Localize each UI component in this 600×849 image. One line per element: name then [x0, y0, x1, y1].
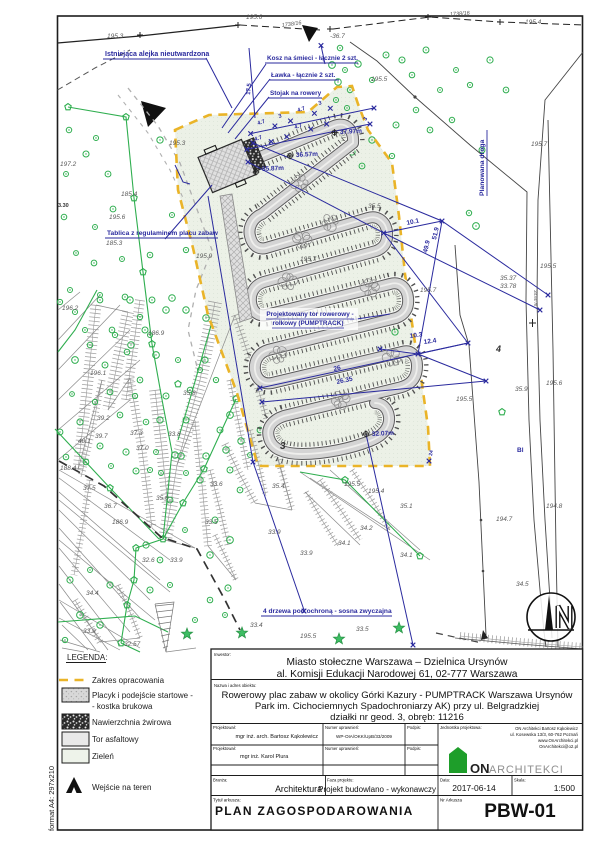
- svg-text:33.4: 33.4: [250, 622, 263, 629]
- svg-text:mgr inż. arch. Bartosz Kąkolew: mgr inż. arch. Bartosz Kąkolewicz: [235, 734, 318, 740]
- svg-text:35.4: 35.4: [272, 483, 285, 490]
- svg-text:33.9: 33.9: [170, 557, 183, 564]
- svg-text:Numer uprawnień:: Numer uprawnień:: [325, 725, 359, 730]
- svg-text:195.4: 195.4: [368, 488, 385, 495]
- svg-text:Projektowany tor rowerowy -: Projektowany tor rowerowy -: [266, 311, 353, 318]
- svg-text:ON Architekci Bartosz Kąkol: ON Architekci Bartosz Kąkolewicz: [515, 726, 578, 731]
- svg-text:Park im. Cichociemnych Spadoch: Park im. Cichociemnych Spadochroniarzy A…: [255, 701, 539, 712]
- svg-text:195.9: 195.9: [196, 253, 213, 260]
- svg-text:Projektował:: Projektował:: [213, 725, 236, 730]
- svg-text:ul. Kosewska 13/3, 60-762 Pozn: ul. Kosewska 13/3, 60-762 Poznań: [510, 732, 578, 737]
- svg-text:196.1: 196.1: [90, 370, 107, 377]
- svg-text:186.9: 186.9: [148, 330, 165, 337]
- svg-text:33.5: 33.5: [356, 626, 369, 633]
- svg-text:35.8: 35.8: [183, 390, 196, 397]
- svg-text:194.8: 194.8: [546, 503, 563, 510]
- svg-text:34.2: 34.2: [360, 525, 373, 532]
- svg-text:Faza projektu:: Faza projektu:: [327, 778, 354, 783]
- svg-text:Nazwa i adres obiektu:: Nazwa i adres obiektu:: [214, 683, 256, 688]
- svg-text:33.9: 33.9: [300, 550, 313, 557]
- svg-text:Ławka - łącznie 2 szt.: Ławka - łącznie 2 szt.: [271, 72, 336, 79]
- svg-text:37.97m: 37.97m: [340, 128, 363, 136]
- svg-text:195.5: 195.5: [371, 76, 388, 83]
- svg-text:35.87m: 35.87m: [262, 165, 285, 173]
- svg-text:34.4: 34.4: [86, 590, 99, 597]
- svg-text:195.7: 195.7: [420, 287, 437, 294]
- svg-text:195.6: 195.6: [246, 14, 263, 21]
- svg-text:ARCHITEKCI: ARCHITEKCI: [489, 764, 564, 776]
- svg-text:-36.7: -36.7: [330, 33, 345, 40]
- svg-text:37.5: 37.5: [83, 485, 96, 492]
- svg-text:34.1: 34.1: [338, 540, 351, 547]
- svg-text:Podpis:: Podpis:: [407, 746, 421, 751]
- svg-text:39.2: 39.2: [97, 415, 110, 422]
- svg-text:Bl: Bl: [517, 447, 524, 454]
- svg-text:195.3: 195.3: [107, 33, 124, 40]
- svg-text:37.0: 37.0: [136, 445, 149, 452]
- svg-text:195.3: 195.3: [169, 140, 186, 147]
- svg-text:Architektura: Architektura: [275, 784, 322, 794]
- svg-text:33.9: 33.9: [83, 628, 96, 635]
- svg-text:Numer uprawnień:: Numer uprawnień:: [325, 746, 359, 751]
- svg-text:194.7: 194.7: [496, 516, 513, 523]
- svg-text:35.9: 35.9: [515, 386, 528, 393]
- svg-text:3: 3: [280, 441, 286, 452]
- svg-text:Kosz na śmieci - łącznie 2 szt: Kosz na śmieci - łącznie 2 szt.: [267, 55, 358, 62]
- svg-text:195.6: 195.6: [546, 380, 563, 387]
- svg-text:Nr Arkusza: Nr Arkusza: [440, 798, 463, 803]
- svg-text:Miasto stołeczne Warszawa – Dz: Miasto stołeczne Warszawa – Dzielnica Ur…: [287, 657, 509, 668]
- svg-text:195.5: 195.5: [456, 396, 473, 403]
- svg-text:Stojak na rowery: Stojak na rowery: [270, 90, 322, 97]
- svg-text:36.7: 36.7: [104, 503, 117, 510]
- svg-text:197.2: 197.2: [60, 161, 77, 168]
- svg-text:rolkowy (PUMPTRACK): rolkowy (PUMPTRACK): [272, 320, 343, 327]
- svg-text:Zieleń: Zieleń: [92, 752, 114, 761]
- svg-text:195.5: 195.5: [300, 633, 317, 640]
- svg-text:195.4: 195.4: [525, 19, 542, 26]
- svg-text:Podpis:: Podpis:: [407, 725, 421, 730]
- svg-text:Data:: Data:: [440, 778, 450, 783]
- svg-text:33.6: 33.6: [210, 481, 223, 488]
- svg-text:mgr inż. Karol Plura: mgr inż. Karol Plura: [240, 754, 289, 760]
- svg-text:LEGENDA:: LEGENDA:: [67, 653, 107, 662]
- svg-text:33.5: 33.5: [205, 519, 218, 526]
- svg-text:34.60 m: 34.60 m: [533, 290, 538, 307]
- svg-text:Rowerowy plac zabaw w okolicy: Rowerowy plac zabaw w okolicy Górki Kazu…: [222, 690, 573, 701]
- svg-text:Projekt budowlano - wykonawczy: Projekt budowlano - wykonawczy: [318, 785, 436, 794]
- svg-text:format A4: 297x210: format A4: 297x210: [47, 766, 56, 831]
- svg-text:37.3: 37.3: [130, 430, 143, 437]
- svg-text:Wejście na teren: Wejście na teren: [92, 783, 151, 792]
- svg-text:www.OnArchitekci.pl: www.OnArchitekci.pl: [538, 738, 578, 743]
- svg-text:ON: ON: [470, 761, 490, 776]
- svg-text:188.4: 188.4: [60, 465, 77, 472]
- svg-text:34.1: 34.1: [400, 552, 413, 559]
- svg-text:Skala:: Skala:: [514, 778, 526, 783]
- svg-text:35.37: 35.37: [500, 275, 517, 282]
- svg-text:Projektował:: Projektował:: [213, 746, 236, 751]
- svg-text:17.5: 17.5: [246, 82, 253, 95]
- svg-text:Planowana droga: Planowana droga: [479, 140, 486, 196]
- svg-text:33.9: 33.9: [268, 529, 281, 536]
- svg-text:al. Komisji Edukacji Narodowej: al. Komisji Edukacji Narodowej 61, 02-77…: [277, 669, 518, 680]
- svg-text:- kostka brukowa: - kostka brukowa: [92, 702, 153, 711]
- svg-text:32.6: 32.6: [142, 557, 155, 564]
- svg-text:196.2: 196.2: [62, 305, 79, 312]
- svg-text:Inwestor:: Inwestor:: [214, 652, 231, 657]
- svg-text:4 drzewa pod ochroną - sosna z: 4 drzewa pod ochroną - sosna zwyczajna: [263, 608, 392, 615]
- svg-text:35.5: 35.5: [368, 203, 381, 210]
- svg-text:185.3: 185.3: [106, 240, 123, 247]
- svg-text:Istniejąca alejka nieutwardzon: Istniejąca alejka nieutwardzona: [105, 51, 209, 58]
- svg-text:32.07m: 32.07m: [372, 430, 395, 438]
- svg-text:Tablica z regulaminem placu za: Tablica z regulaminem placu zabaw: [107, 230, 219, 237]
- svg-text:40.1: 40.1: [78, 438, 91, 445]
- svg-text:1:500: 1:500: [554, 783, 576, 793]
- svg-text:39.7: 39.7: [95, 433, 108, 440]
- svg-text:działki nr geod. 3, obręb: 112: działki nr geod. 3, obręb: 11216: [330, 712, 464, 723]
- svg-text:2017-06-14: 2017-06-14: [452, 783, 496, 793]
- svg-text:Branża:: Branża:: [213, 778, 227, 783]
- svg-text:4: 4: [495, 344, 501, 354]
- svg-text:195.5: 195.5: [344, 481, 361, 488]
- svg-text:Jednostka projektowa:: Jednostka projektowa:: [440, 725, 482, 730]
- svg-text:35.1: 35.1: [400, 503, 413, 510]
- svg-text:PBW-01: PBW-01: [484, 801, 556, 822]
- svg-text:186.9: 186.9: [112, 519, 129, 526]
- svg-text:Nawierzchnia żwirowa: Nawierzchnia żwirowa: [92, 718, 172, 727]
- svg-text:35.6: 35.6: [156, 495, 169, 502]
- svg-text:195.7: 195.7: [300, 256, 317, 263]
- svg-text:33.8: 33.8: [168, 431, 181, 438]
- svg-text:OnArchitekci@o2.pl: OnArchitekci@o2.pl: [539, 744, 578, 749]
- svg-text:36.57m: 36.57m: [296, 151, 319, 159]
- svg-text:Tytuł arkusza:: Tytuł arkusza:: [213, 798, 241, 803]
- svg-text:Tor asfaltowy: Tor asfaltowy: [92, 735, 139, 744]
- svg-text:WP-OIA/OKK/UpB/33/2009: WP-OIA/OKK/UpB/33/2009: [336, 734, 392, 739]
- svg-text:Zakres opracowania: Zakres opracowania: [92, 676, 165, 685]
- svg-text:Placyk i podejście startowe -: Placyk i podejście startowe -: [92, 691, 193, 700]
- svg-text:195.6: 195.6: [109, 214, 126, 221]
- svg-text:185.4: 185.4: [121, 191, 138, 198]
- svg-text:34.5: 34.5: [516, 581, 529, 588]
- svg-text:3.30: 3.30: [58, 203, 69, 209]
- svg-text:195.7: 195.7: [531, 141, 548, 148]
- svg-text:PLAN ZAGOSPODAROWANIA: PLAN ZAGOSPODAROWANIA: [215, 804, 414, 818]
- svg-text:32.57: 32.57: [124, 641, 141, 648]
- svg-text:195.5: 195.5: [540, 263, 557, 270]
- svg-text:33.78: 33.78: [500, 283, 517, 290]
